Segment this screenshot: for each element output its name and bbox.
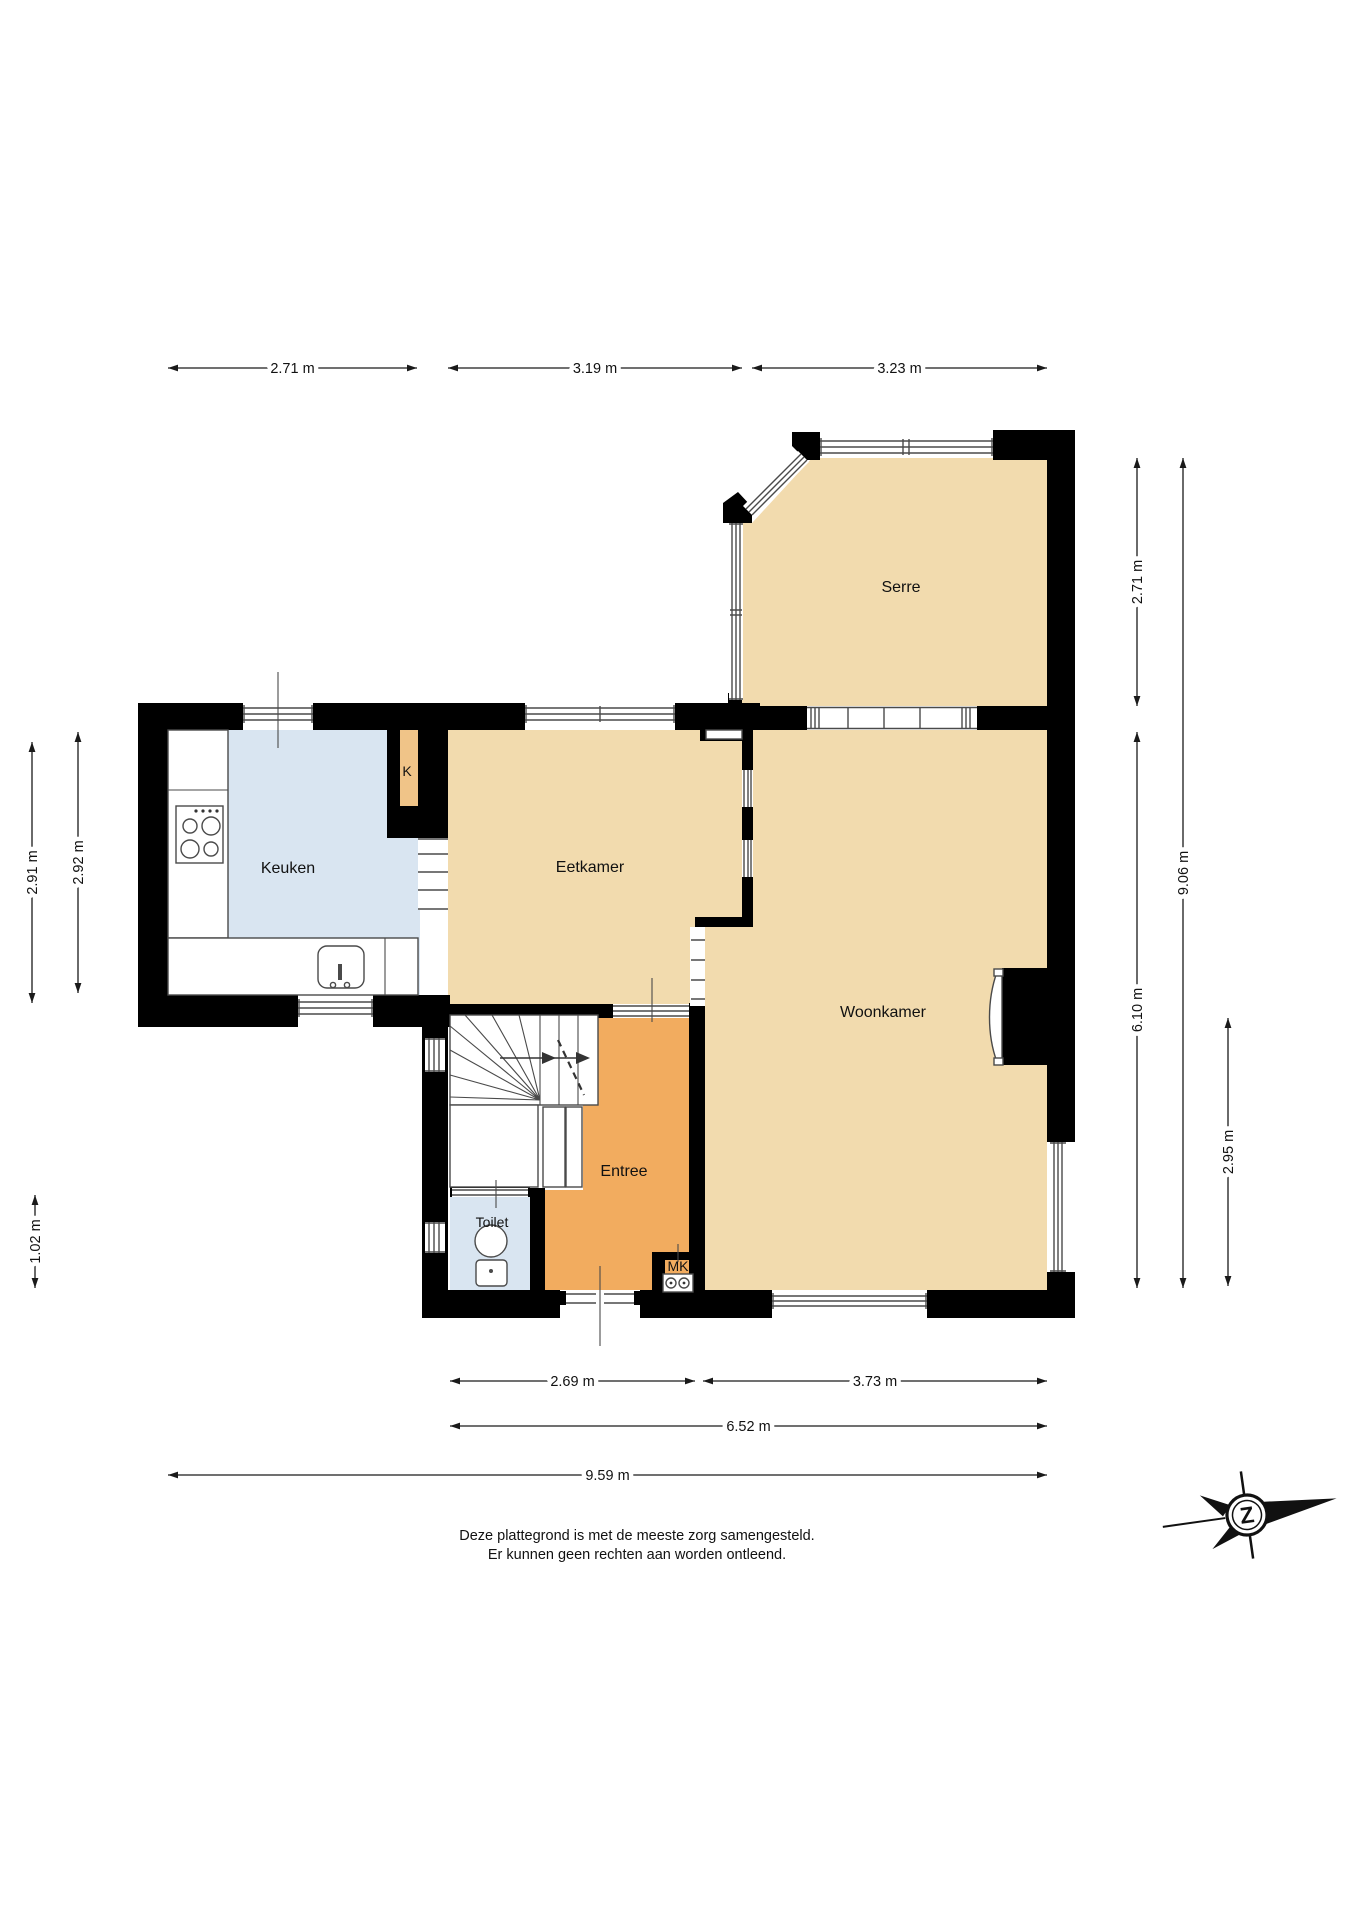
- floor-plan-canvas: 2.71 m3.19 m3.23 m2.69 m3.73 m6.52 m9.59…: [0, 0, 1358, 1920]
- dimension-right-window: 2.95 m: [1221, 1018, 1237, 1286]
- keuken-serving-hatch: [418, 838, 448, 910]
- dimension-right-woonkamer: 6.10 m: [1130, 732, 1146, 1288]
- dimension-top-serre: 3.23 m: [752, 361, 1047, 377]
- compass-north-indicator: Z: [1157, 1459, 1344, 1571]
- entree-label: Entree: [600, 1163, 647, 1180]
- wall-niche: [706, 730, 742, 739]
- dimension-top-eetkamer: 3.19 m: [448, 361, 742, 377]
- stairs-closet: [450, 1105, 538, 1187]
- dimension-right-total-label: 9.06 m: [1176, 851, 1192, 895]
- dimension-left-toilet: 1.02 m: [28, 1195, 44, 1288]
- keuken-bottom-window-icon: [298, 999, 373, 1017]
- eetkamer-window-icon: [525, 705, 675, 723]
- trap-window-icon: [425, 1038, 445, 1072]
- dimension-right-window-label: 2.95 m: [1221, 1130, 1237, 1174]
- disclaimer-line2: Er kunnen geen rechten aan worden ontlee…: [488, 1547, 786, 1563]
- closet-k-label: K: [402, 763, 412, 779]
- dimension-right-woonkamer-label: 6.10 m: [1130, 988, 1146, 1032]
- dimension-bottom-entree-label: 2.69 m: [550, 1374, 594, 1390]
- dimension-left-keuken-outer: 2.91 m: [25, 742, 41, 1003]
- toilet-label: Toilet: [476, 1214, 509, 1230]
- kitchen-counter-bottom: [168, 938, 418, 995]
- dimension-top-eetkamer-label: 3.19 m: [573, 361, 617, 377]
- dimension-bottom-woonkamer-label: 3.73 m: [853, 1374, 897, 1390]
- serre-folding-door-icon: [807, 706, 977, 730]
- dimension-left-keuken-inner: 2.92 m: [71, 732, 87, 993]
- dimension-top-serre-label: 3.23 m: [877, 361, 921, 377]
- dimension-left-keuken-outer-label: 2.91 m: [25, 850, 41, 894]
- meter-closet-label: MK: [668, 1258, 690, 1274]
- dimension-right-total: 9.06 m: [1176, 458, 1192, 1288]
- sink-icon: [318, 946, 364, 988]
- woonkamer-label: Woonkamer: [840, 1004, 927, 1021]
- toilet-door: [452, 1188, 528, 1197]
- dimension-top-keuken-label: 2.71 m: [270, 361, 314, 377]
- dimension-bottom-total-label: 9.59 m: [585, 1468, 629, 1484]
- woonkamer-bottom-window-icon: [772, 1293, 927, 1309]
- serre-label: Serre: [881, 579, 920, 596]
- dimension-bottom-entree: 2.69 m: [450, 1374, 695, 1390]
- stove-icon: [176, 806, 223, 863]
- dimension-bottom-inner-label: 6.52 m: [726, 1419, 770, 1435]
- dimension-left-toilet-label: 1.02 m: [28, 1219, 44, 1263]
- meter-cabinet-icon: [663, 1274, 693, 1292]
- dimension-right-serre: 2.71 m: [1130, 458, 1146, 706]
- disclaimer: Deze plattegrond is met de meeste zorg s…: [459, 1528, 814, 1563]
- chimney: [1002, 968, 1047, 1065]
- toilet-window-icon: [425, 1222, 445, 1253]
- dimension-bottom-inner: 6.52 m: [450, 1419, 1047, 1435]
- serre-top-window-icon: [820, 438, 993, 456]
- dimension-bottom-woonkamer: 3.73 m: [703, 1374, 1047, 1390]
- stairs: [450, 1015, 598, 1187]
- dimension-top-keuken: 2.71 m: [168, 361, 417, 377]
- eetkamer-entree-door: [613, 1004, 689, 1018]
- eetkamer-label: Eetkamer: [556, 859, 625, 876]
- dimension-bottom-total: 9.59 m: [168, 1468, 1047, 1484]
- serre-left-window-icon: [729, 523, 743, 700]
- woonkamer-right-window-icon: [1050, 1142, 1066, 1272]
- eetkamer-woonkamer-passage: [690, 927, 705, 1006]
- dimension-left-keuken-inner-label: 2.92 m: [71, 840, 87, 884]
- keuken-label: Keuken: [261, 860, 315, 877]
- disclaimer-line1: Deze plattegrond is met de meeste zorg s…: [459, 1528, 814, 1544]
- entree-woonkamer-wall: [689, 1003, 705, 1290]
- compass-arrow-icon: [1261, 1491, 1338, 1524]
- dimension-right-serre-label: 2.71 m: [1130, 560, 1146, 604]
- floor-plan-page: 2.71 m3.19 m3.23 m2.69 m3.73 m6.52 m9.59…: [0, 0, 1358, 1920]
